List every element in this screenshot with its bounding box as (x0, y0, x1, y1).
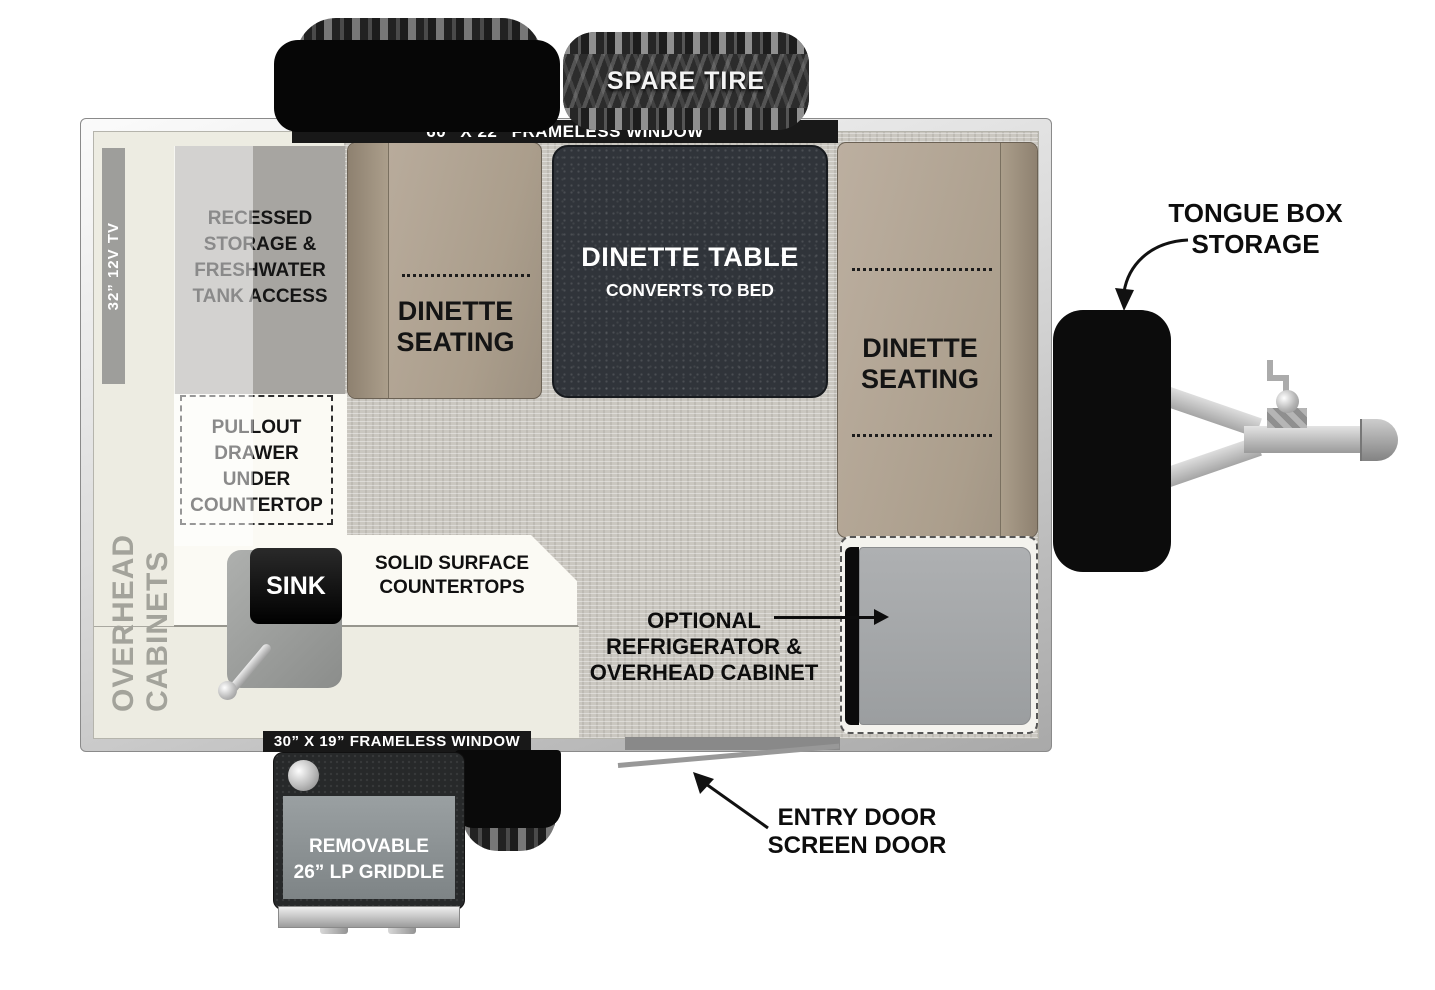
recessed-storage-label: RECESSED (208, 206, 313, 232)
griddle-label: 26” LP GRIDDLE (283, 860, 455, 886)
pullout-drawer-label: UNDER (223, 467, 291, 493)
tongue-box-label: STORAGE (1158, 229, 1353, 260)
seat-backrest (1000, 143, 1037, 537)
tv-12v: 32” 12V TV (102, 148, 125, 384)
optional-refrigerator-zone (840, 536, 1038, 734)
refrigerator-label: OPTIONAL (564, 608, 844, 634)
countertops-label: SOLID SURFACE (352, 552, 552, 576)
overhead-cabinets: OVERHEAD CABINETS (112, 382, 170, 712)
recessed-storage-label: STORAGE & (204, 232, 317, 258)
overhead-cabinets-label: OVERHEAD CABINETS (107, 382, 175, 712)
seat-fold-line (402, 274, 530, 277)
griddle-label: REMOVABLE (283, 834, 455, 860)
tongue-box-label: TONGUE BOX (1158, 198, 1353, 229)
sink-label: SINK (250, 548, 342, 624)
dinette-seating-label: SEATING (840, 364, 1000, 395)
recessed-storage-label: FRESHWATER (194, 258, 326, 284)
lp-griddle: REMOVABLE 26” LP GRIDDLE (273, 752, 465, 910)
refrigerator-label: REFRIGERATOR & (564, 634, 844, 660)
dinette-seating-label: DINETTE (840, 333, 1000, 364)
countertops-label: COUNTERTOPS (352, 576, 552, 600)
tongue-box (1053, 310, 1171, 572)
dinette-seat-right: DINETTE SEATING (837, 142, 1038, 538)
pullout-drawer-label: PULLOUT (212, 415, 302, 441)
griddle-knob (288, 760, 319, 791)
bottom-window-label: 30” X 19” FRAMELESS WINDOW (263, 731, 531, 752)
hitch-crank (1267, 360, 1273, 377)
rv-floorplan-diagram: SPARE TIRE 32” 12V TV OVERHEAD CABINETS … (0, 0, 1435, 990)
pullout-drawer-area: PULLOUT DRAWER UNDER COUNTERTOP (180, 395, 333, 525)
hitch-coupler-endcap (1360, 419, 1398, 461)
pullout-drawer-label: DRAWER (214, 441, 298, 467)
refrigerator-arrow-line (774, 616, 876, 619)
dinette-seating-label: DINETTE (388, 296, 523, 327)
tongue-box-label-block: TONGUE BOX STORAGE (1158, 198, 1353, 260)
recessed-storage-area: RECESSED STORAGE & FRESHWATER TANK ACCES… (175, 146, 345, 394)
rear-wheel-fender (455, 750, 561, 828)
refrigerator-label-block: OPTIONAL REFRIGERATOR & OVERHEAD CABINET (564, 608, 844, 686)
faucet-handle (218, 681, 237, 700)
entry-door-label: SCREEN DOOR (757, 832, 957, 860)
seat-fold-line (852, 434, 992, 437)
griddle-base-bar (278, 906, 460, 928)
dinette-table: DINETTE TABLE CONVERTS TO BED (552, 145, 828, 398)
spare-tire-label: SPARE TIRE (563, 32, 809, 130)
countertops-label-block: SOLID SURFACE COUNTERTOPS (352, 552, 552, 600)
pullout-drawer-label: COUNTERTOP (190, 493, 323, 519)
dinette-seat-left: DINETTE SEATING (347, 142, 542, 399)
hitch-ball (1276, 390, 1299, 413)
dinette-table-sublabel: CONVERTS TO BED (554, 280, 826, 301)
spare-tire: SPARE TIRE (563, 32, 809, 130)
refrigerator-hinge-strip (845, 547, 859, 725)
refrigerator (859, 547, 1031, 725)
refrigerator-label: OVERHEAD CABINET (564, 660, 844, 686)
front-wheel-fender (274, 40, 560, 132)
griddle-label-block: REMOVABLE 26” LP GRIDDLE (283, 796, 455, 899)
trailer-body: 32” 12V TV OVERHEAD CABINETS RECESSED ST… (80, 118, 1052, 752)
entry-door-label: ENTRY DOOR (757, 804, 957, 832)
refrigerator-arrow-head (874, 609, 889, 625)
dinette-table-label: DINETTE TABLE (554, 242, 826, 273)
entry-door-label-block: ENTRY DOOR SCREEN DOOR (757, 804, 957, 860)
seat-backrest (348, 143, 389, 398)
tv-label: 32” 12V TV (105, 222, 122, 310)
dinette-seating-label: SEATING (388, 327, 523, 358)
recessed-storage-label: TANK ACCESS (192, 284, 327, 310)
hitch-shaft (1244, 426, 1370, 453)
seat-fold-line (852, 268, 992, 271)
trailer-interior: 32” 12V TV OVERHEAD CABINETS RECESSED ST… (93, 131, 1039, 739)
